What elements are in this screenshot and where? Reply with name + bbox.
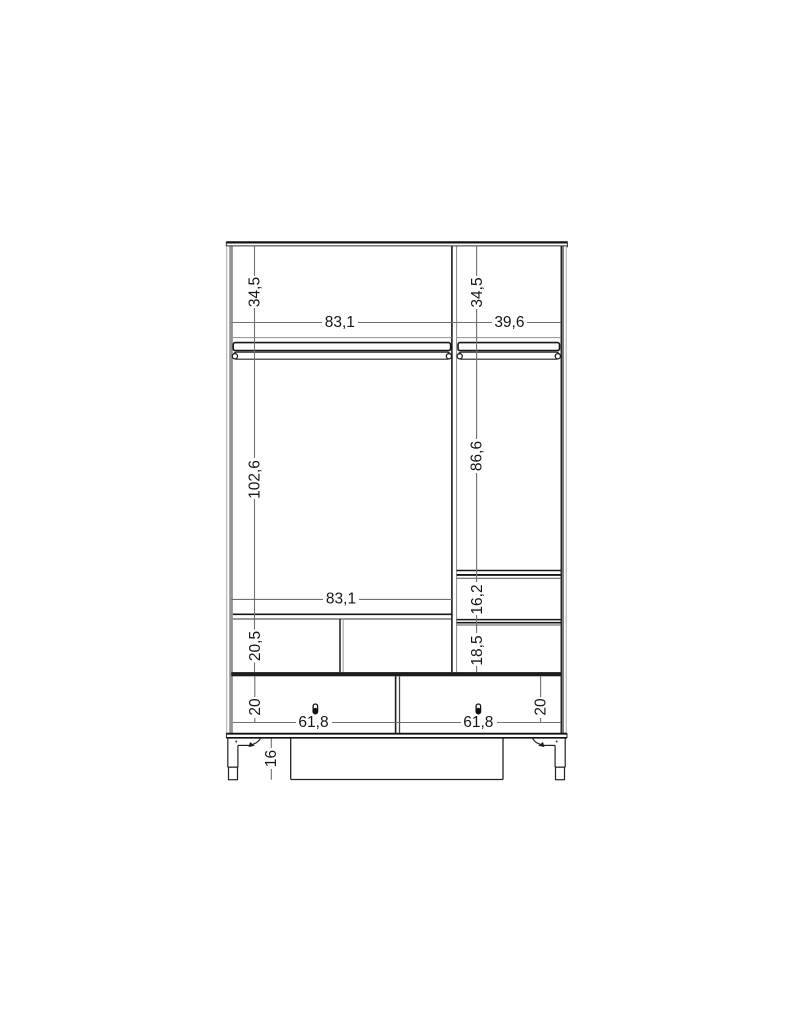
svg-text:34,5: 34,5 [247,277,264,307]
svg-text:20,5: 20,5 [247,631,264,661]
svg-text:34,5: 34,5 [469,277,486,307]
svg-text:20: 20 [247,698,264,716]
svg-text:61,8: 61,8 [298,714,328,731]
svg-text:86,6: 86,6 [469,441,486,471]
svg-text:102,6: 102,6 [246,460,263,499]
svg-text:20: 20 [533,698,550,716]
svg-text:83,1: 83,1 [325,314,355,331]
svg-text:83,1: 83,1 [326,591,356,608]
svg-text:16,2: 16,2 [469,584,486,614]
svg-text:39,6: 39,6 [494,314,524,331]
svg-text:18,5: 18,5 [469,635,486,665]
svg-text:61,8: 61,8 [463,714,493,731]
svg-text:16: 16 [263,750,280,767]
